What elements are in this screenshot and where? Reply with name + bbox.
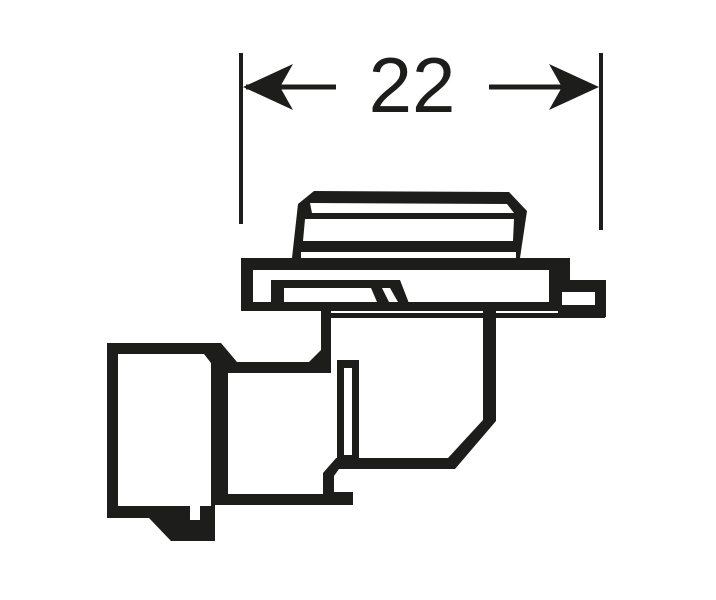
barrel-interior-face bbox=[228, 373, 337, 494]
key-bar-face bbox=[284, 288, 377, 302]
cap-lower-face bbox=[301, 252, 516, 258]
technical-drawing-canvas: 22 bbox=[0, 0, 716, 600]
cap-middle-face bbox=[303, 219, 514, 241]
dimension-value-label: 22 bbox=[369, 41, 456, 129]
flange-tab-notch bbox=[562, 292, 595, 305]
bulb-base-dimension-drawing: 22 bbox=[0, 0, 716, 600]
cap-top-face bbox=[310, 203, 514, 213]
bulb-base-drawing bbox=[107, 191, 606, 541]
connector-block-interior-face bbox=[118, 354, 211, 520]
rib-strip-face bbox=[344, 368, 352, 455]
